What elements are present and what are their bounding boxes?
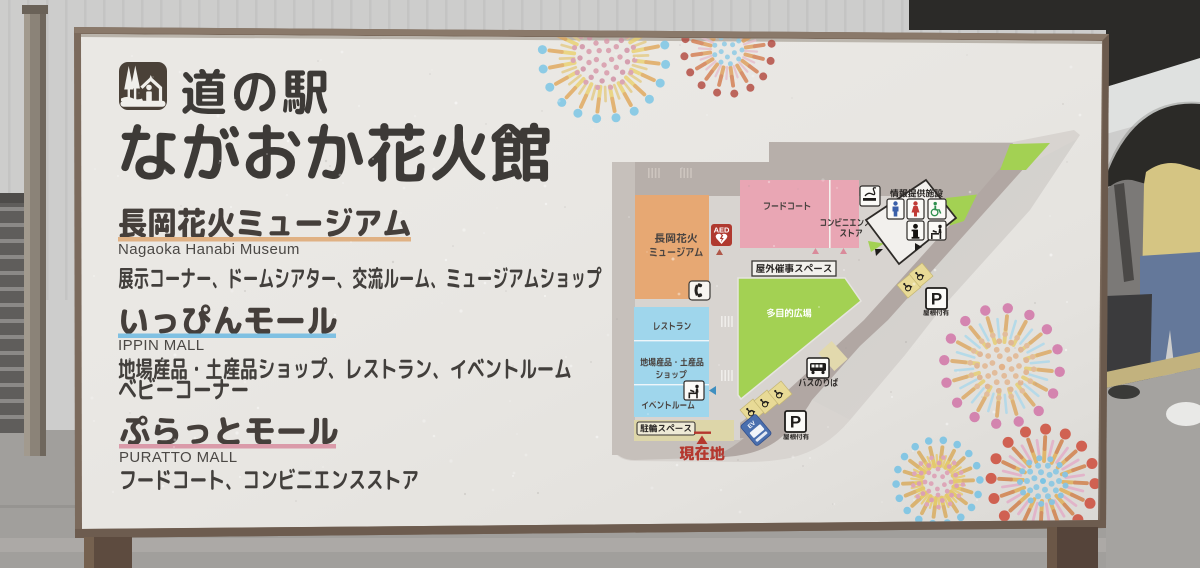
svg-text:P: P xyxy=(790,413,801,432)
svg-text:P: P xyxy=(931,290,942,309)
svg-text:AED: AED xyxy=(714,226,730,235)
svg-text:Nagaoka Hanabi Museum: Nagaoka Hanabi Museum xyxy=(118,241,300,258)
svg-text:PURATTO MALL: PURATTO MALL xyxy=(119,449,237,466)
svg-text:IPPIN MALL: IPPIN MALL xyxy=(118,337,205,354)
